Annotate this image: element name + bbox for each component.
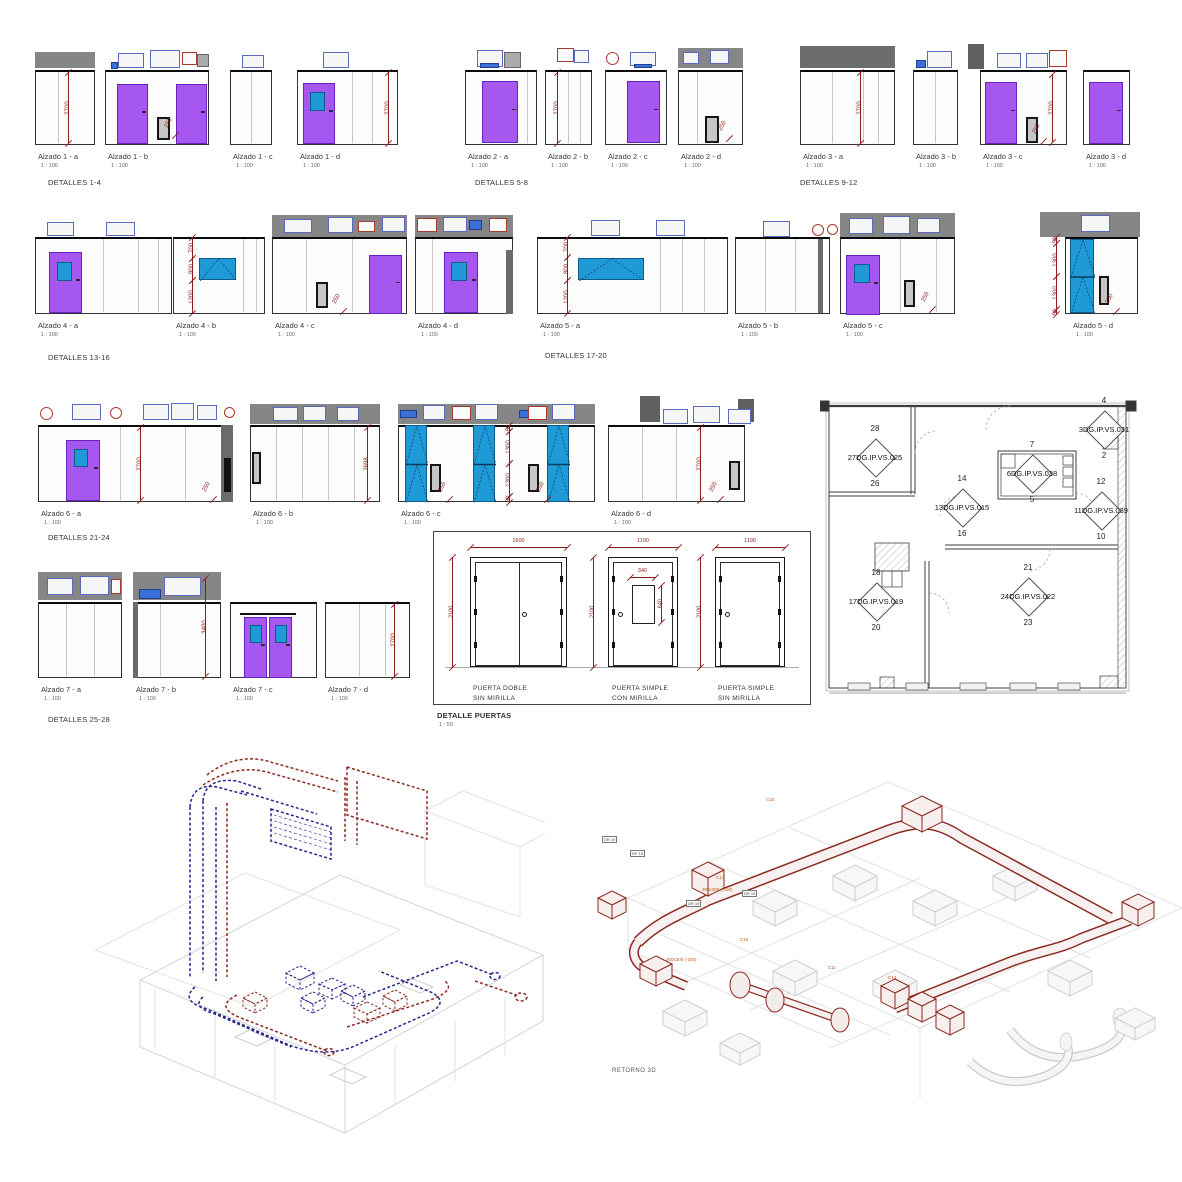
hinge xyxy=(612,609,615,615)
hinge xyxy=(671,642,674,648)
marker-number-top: 14 xyxy=(947,474,977,483)
dim-line xyxy=(630,577,655,578)
floor-plan-walls xyxy=(820,393,1140,705)
marker-number-top: 12 xyxy=(1086,477,1116,486)
marker-number-bottom: 2 xyxy=(1089,451,1119,460)
dim-line xyxy=(608,547,678,548)
hinge xyxy=(560,609,563,615)
door-label-line2: SIN MIRILLA xyxy=(718,695,760,702)
duct-tag-orange: 300x300 (-150) xyxy=(702,888,733,893)
marker-number-top: 28 xyxy=(860,424,890,433)
hinge xyxy=(719,642,722,648)
elevation-marker-label: 13DG.IP.VS.015 xyxy=(914,503,1010,512)
elevation-marker-label: 3DG.IP.VS.031 xyxy=(1056,425,1152,434)
dim-line xyxy=(715,547,785,548)
door-knob xyxy=(725,612,730,617)
door-detail-scale: 1 : 50 xyxy=(439,722,453,728)
3d-view-supply-return xyxy=(95,745,545,1140)
dim-text: 1100 xyxy=(726,539,774,545)
hinge xyxy=(778,609,781,615)
dim-text: 340 xyxy=(619,569,667,575)
door-label-line2: CON MIRILLA xyxy=(612,695,658,702)
duct-tag-boxed: DP 19 xyxy=(630,850,645,857)
door-label-line1: PUERTA SIMPLE xyxy=(718,685,774,692)
dim-text: 2100 xyxy=(697,588,703,636)
hinge xyxy=(474,642,477,648)
door-type-label: PUERTA SIMPLECON MIRILLA xyxy=(612,684,668,704)
duct-tag-orange: 300x300 (-150) xyxy=(666,958,697,963)
marker-number-top: 21 xyxy=(1013,563,1043,572)
door-type-label: PUERTA SIMPLESIN MIRILLA xyxy=(718,684,774,704)
elevation-marker-label: 11DG.IP.VS.039 xyxy=(1053,506,1149,515)
hinge xyxy=(612,642,615,648)
hinge xyxy=(778,576,781,582)
hinge xyxy=(719,609,722,615)
hinge xyxy=(474,576,477,582)
duct-tag-boxed: DR 19 xyxy=(602,836,617,843)
door-knob xyxy=(522,612,527,617)
dim-text: 1600 xyxy=(495,539,543,545)
hinge xyxy=(560,642,563,648)
duct-tag-boxed: DR 19 xyxy=(686,900,701,907)
elevation-marker-label: 17DG.IP.VS.019 xyxy=(828,597,924,606)
marker-number-bottom: 10 xyxy=(1086,532,1116,541)
dim-text: 640 xyxy=(658,579,664,627)
marker-number-bottom: 5 xyxy=(1017,495,1047,504)
3d-return-svg xyxy=(590,780,1182,1100)
duct-tag-orange: C15 xyxy=(766,798,774,803)
marker-number-bottom: 26 xyxy=(860,479,890,488)
supply-duct-red xyxy=(203,759,527,1056)
hinge xyxy=(612,576,615,582)
return-duct-main-red xyxy=(598,796,1154,1035)
marker-number-bottom: 23 xyxy=(1013,618,1043,627)
dim-text: 2100 xyxy=(590,588,596,636)
elevation-marker-label: 6DG.IP.VS.038 xyxy=(984,469,1080,478)
dim-line xyxy=(470,547,567,548)
drawing-sheet: 2700Alzado 1 - a1 : 100250Alzado 1 - b1 … xyxy=(0,0,1182,1182)
mirilla-window xyxy=(632,585,655,624)
leaf-split-line xyxy=(519,562,520,666)
hinge xyxy=(474,609,477,615)
door-type-label: PUERTA DOBLESIN MIRILLA xyxy=(473,684,527,704)
ground-line xyxy=(445,667,799,668)
duct-tag-orange: C11 xyxy=(828,966,836,971)
dim-text: 2100 xyxy=(449,588,455,636)
hinge xyxy=(671,609,674,615)
marker-number-bottom: 20 xyxy=(861,623,891,632)
3d-supply-return-svg xyxy=(95,745,545,1140)
marker-number-top: 4 xyxy=(1089,396,1119,405)
dim-text: 1100 xyxy=(619,539,667,545)
floor-plan: 27DG.IP.VS.025282613DG.IP.VS.01514166DG.… xyxy=(820,393,1140,705)
elevation-marker-label: 27DG.IP.VS.025 xyxy=(827,453,923,462)
marker-number-bottom: 16 xyxy=(947,529,977,538)
marker-number-top: 7 xyxy=(1017,440,1047,449)
view-title-retorno: RETORNO 3D xyxy=(612,1068,656,1074)
duct-tag-orange: C13 xyxy=(716,876,724,881)
door-label-line2: SIN MIRILLA xyxy=(473,695,515,702)
hinge xyxy=(778,642,781,648)
hinge xyxy=(560,576,563,582)
duct-tag-boxed: DR 19 xyxy=(742,890,757,897)
3d-view-return: C15C13300x300 (-150)C15300x300 (-150)C11… xyxy=(590,780,1182,1100)
hinge xyxy=(719,576,722,582)
duct-tag-orange: C14 xyxy=(888,976,896,981)
hinge xyxy=(671,576,674,582)
duct-tag-orange: C15 xyxy=(740,938,748,943)
door-label-line1: PUERTA DOBLE xyxy=(473,685,527,692)
door-detail-title: DETALLE PUERTAS xyxy=(437,711,511,720)
elevation-marker-label: 24DG.IP.VS.022 xyxy=(980,592,1076,601)
door-knob xyxy=(618,612,623,617)
marker-number-top: 18 xyxy=(861,568,891,577)
building-wireframe xyxy=(95,791,545,1133)
door-label-line1: PUERTA SIMPLE xyxy=(612,685,668,692)
